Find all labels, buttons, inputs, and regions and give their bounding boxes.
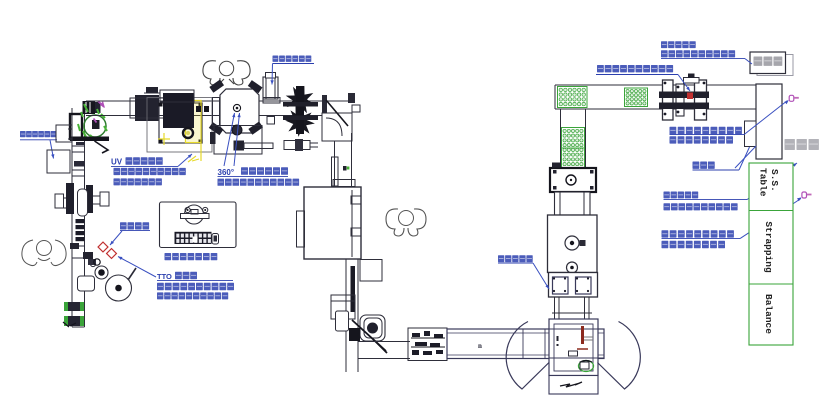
svg-text:Strapping: Strapping xyxy=(763,221,774,273)
svg-text:Balance: Balance xyxy=(763,294,774,334)
svg-text:S.S.: S.S. xyxy=(769,169,780,192)
svg-text:TTO: TTO xyxy=(157,272,172,281)
svg-text:360°: 360° xyxy=(218,168,235,177)
svg-text:UV: UV xyxy=(111,158,123,167)
svg-text:n: n xyxy=(478,342,482,350)
svg-text:Table: Table xyxy=(758,168,769,197)
